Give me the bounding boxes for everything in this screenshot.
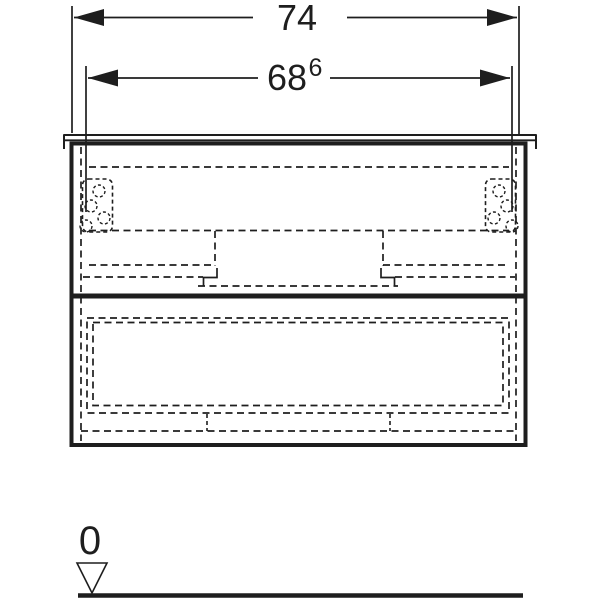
drawer1-recess-step-right bbox=[381, 268, 395, 286]
technical-drawing-canvas: 74 68 6 bbox=[0, 0, 600, 600]
dim-686-arrowhead-right-icon bbox=[480, 70, 510, 87]
dim-74-arrowhead-right-icon bbox=[487, 9, 517, 26]
dim-686-label: 68 bbox=[267, 57, 307, 98]
dimension-cabinet-width: 68 6 bbox=[86, 54, 512, 212]
drawer1-recess-step-left bbox=[204, 268, 218, 286]
bracket-hole-icon bbox=[493, 185, 505, 197]
dim-686-arrowhead-left-icon bbox=[88, 70, 118, 87]
drawer2-panel-outer-dashed-rect bbox=[87, 318, 509, 413]
datum-triangle-icon bbox=[77, 563, 107, 593]
mounting-bracket-left bbox=[80, 179, 113, 232]
cabinet-carcass bbox=[64, 135, 536, 445]
bracket-hole-icon bbox=[98, 212, 110, 224]
bracket-outline-dashed bbox=[83, 179, 113, 232]
bracket-hole-icon bbox=[93, 185, 105, 197]
floor-datum: 0 bbox=[77, 519, 523, 596]
dim-74-arrowhead-left-icon bbox=[74, 9, 104, 26]
datum-zero-label: 0 bbox=[79, 519, 101, 563]
drawer2-panel-inner-dashed-rect bbox=[93, 323, 503, 406]
dim-74-label: 74 bbox=[277, 0, 317, 38]
vanity-dimension-diagram: 74 68 6 bbox=[0, 0, 600, 600]
dim-686-label-superscript: 6 bbox=[309, 54, 323, 82]
bracket-hole-icon bbox=[488, 212, 500, 224]
mounting-bracket-right bbox=[486, 179, 519, 232]
